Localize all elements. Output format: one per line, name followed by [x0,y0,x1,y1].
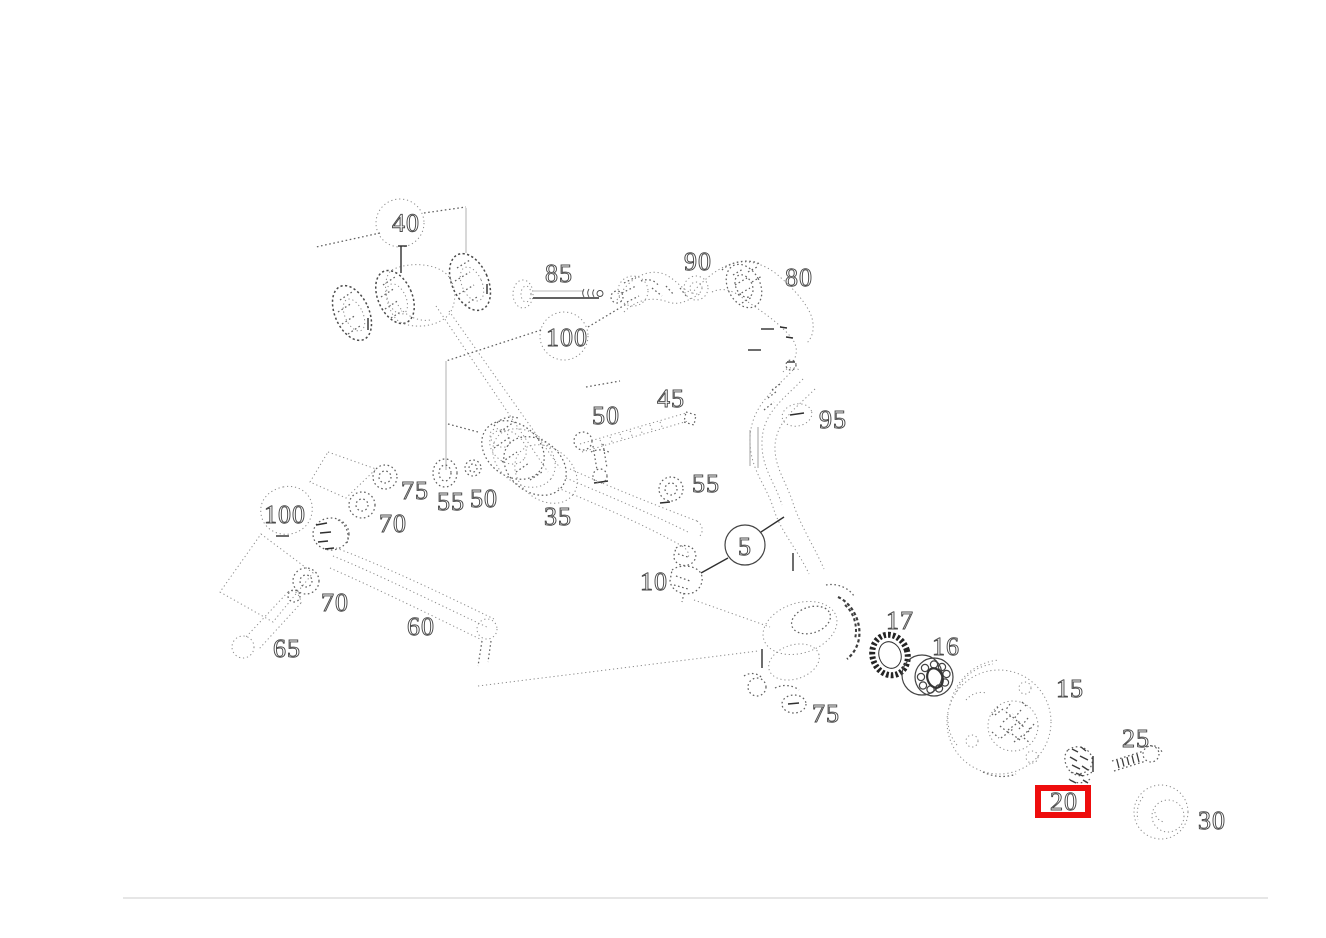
svg-text:85: 85 [545,259,573,288]
svg-text:40: 40 [392,209,420,238]
svg-text:15: 15 [1056,674,1084,703]
svg-text:75: 75 [401,476,429,505]
svg-text:80: 80 [785,263,813,292]
svg-text:70: 70 [379,509,407,538]
svg-text:10: 10 [640,567,668,596]
svg-text:45: 45 [657,384,685,413]
svg-text:20: 20 [1050,787,1078,816]
svg-text:17: 17 [886,606,914,635]
svg-text:16: 16 [932,632,960,661]
svg-text:55: 55 [437,487,465,516]
svg-text:60: 60 [407,612,435,641]
svg-text:100: 100 [264,500,306,529]
svg-text:25: 25 [1122,724,1150,753]
svg-text:100: 100 [546,323,588,352]
svg-text:50: 50 [592,401,620,430]
svg-text:65: 65 [273,634,301,663]
svg-text:90: 90 [684,247,712,276]
svg-text:35: 35 [544,502,572,531]
svg-text:30: 30 [1198,806,1226,835]
svg-text:50: 50 [470,484,498,513]
svg-text:75: 75 [812,699,840,728]
svg-text:70: 70 [321,588,349,617]
svg-text:5: 5 [738,532,752,561]
svg-text:55: 55 [692,469,720,498]
svg-text:95: 95 [819,405,847,434]
